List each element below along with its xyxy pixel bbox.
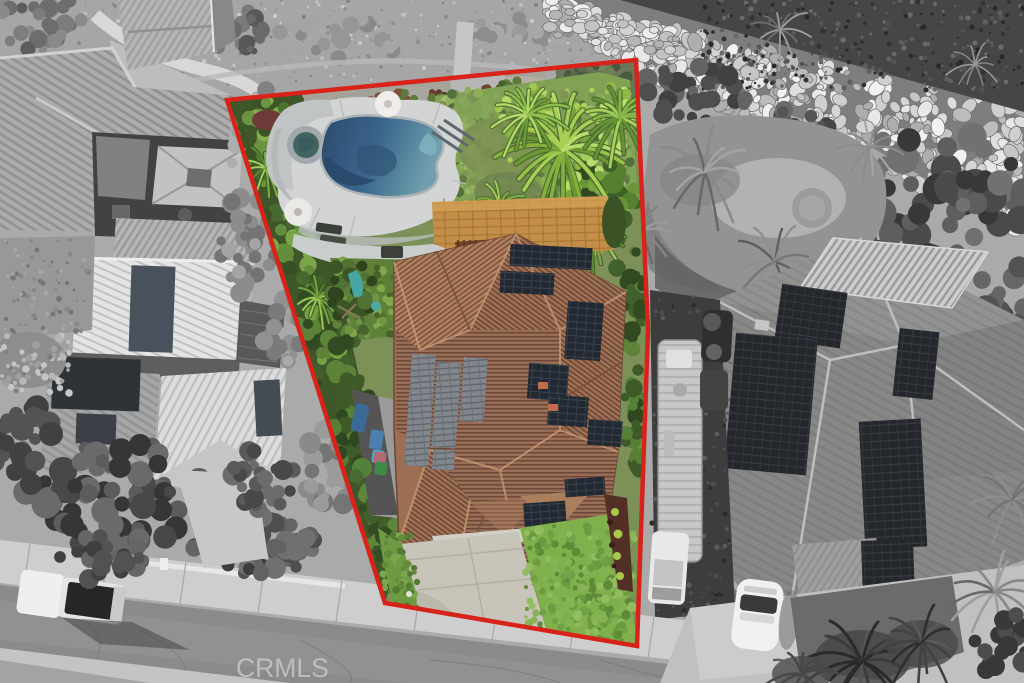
- svg-text:CRMLS: CRMLS: [236, 653, 329, 683]
